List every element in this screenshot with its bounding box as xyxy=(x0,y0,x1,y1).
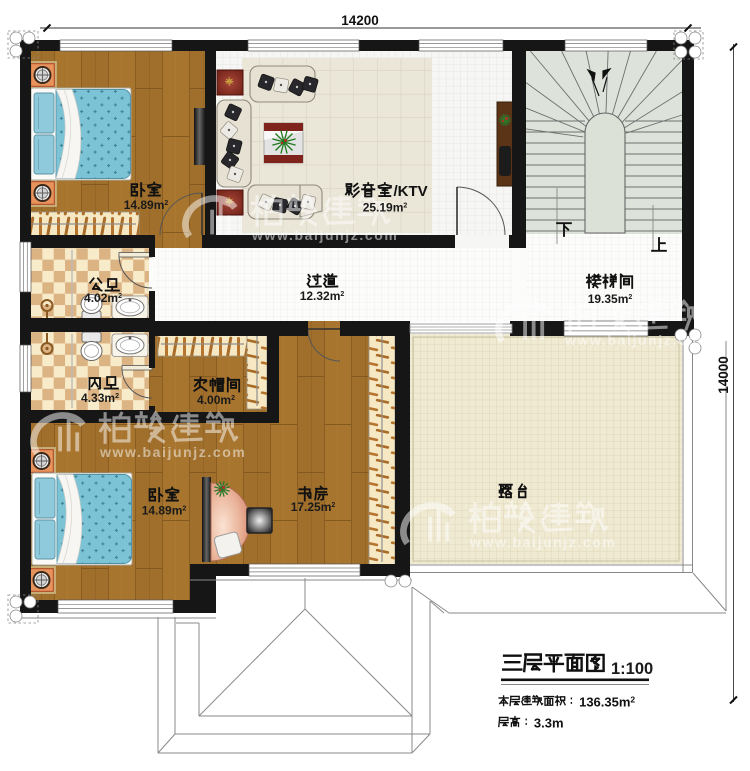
svg-text:3.3m: 3.3m xyxy=(534,716,564,731)
svg-text:www.baijunjz.com: www.baijunjz.com xyxy=(564,332,711,348)
svg-text:14.89m2: 14.89m2 xyxy=(142,504,187,518)
svg-text:/KTV: /KTV xyxy=(394,183,428,200)
svg-text:4.00m2: 4.00m2 xyxy=(197,393,235,407)
svg-text:17.25m2: 17.25m2 xyxy=(291,500,336,514)
svg-text:136.35m2: 136.35m2 xyxy=(579,695,635,710)
svg-text:4.33m2: 4.33m2 xyxy=(81,391,119,405)
svg-text:12.32m2: 12.32m2 xyxy=(300,289,345,303)
svg-text:www.baijunjz.com: www.baijunjz.com xyxy=(99,444,246,460)
svg-text:www.baijunjz.com: www.baijunjz.com xyxy=(251,227,398,243)
svg-text:14.89m2: 14.89m2 xyxy=(124,198,169,212)
svg-text:14200: 14200 xyxy=(341,13,379,28)
svg-text:14000: 14000 xyxy=(716,356,731,394)
svg-text:19.35m2: 19.35m2 xyxy=(588,292,633,306)
svg-text:www.baijunjz.com: www.baijunjz.com xyxy=(469,534,616,550)
svg-text:4.02m2: 4.02m2 xyxy=(84,291,122,305)
svg-text:1:100: 1:100 xyxy=(611,660,653,678)
svg-text:25.19m2: 25.19m2 xyxy=(363,201,408,215)
